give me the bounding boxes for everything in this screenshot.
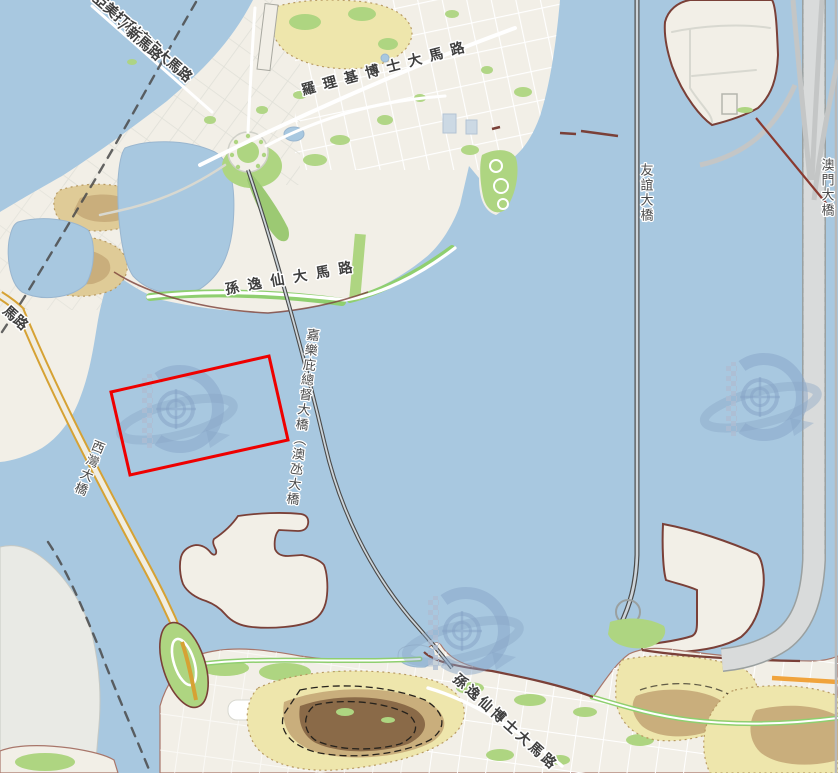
nam-van-lake <box>118 142 234 294</box>
building <box>466 120 477 134</box>
building <box>443 114 456 133</box>
map-canvas: 亞美打利庇盧大馬路 / 新馬路 羅理基博士大馬路 孫逸仙大馬路 孫逸仙博士大馬路… <box>0 0 838 773</box>
map-viewport[interactable]: 亞美打利庇盧大馬路 / 新馬路 羅理基博士大馬路 孫逸仙大馬路 孫逸仙博士大馬路… <box>0 0 838 773</box>
label-macau-bridge: 澳門大橋 <box>819 157 835 218</box>
label-friendship-bridge: 友誼大橋 <box>638 162 654 223</box>
sai-van-lake <box>8 219 93 298</box>
